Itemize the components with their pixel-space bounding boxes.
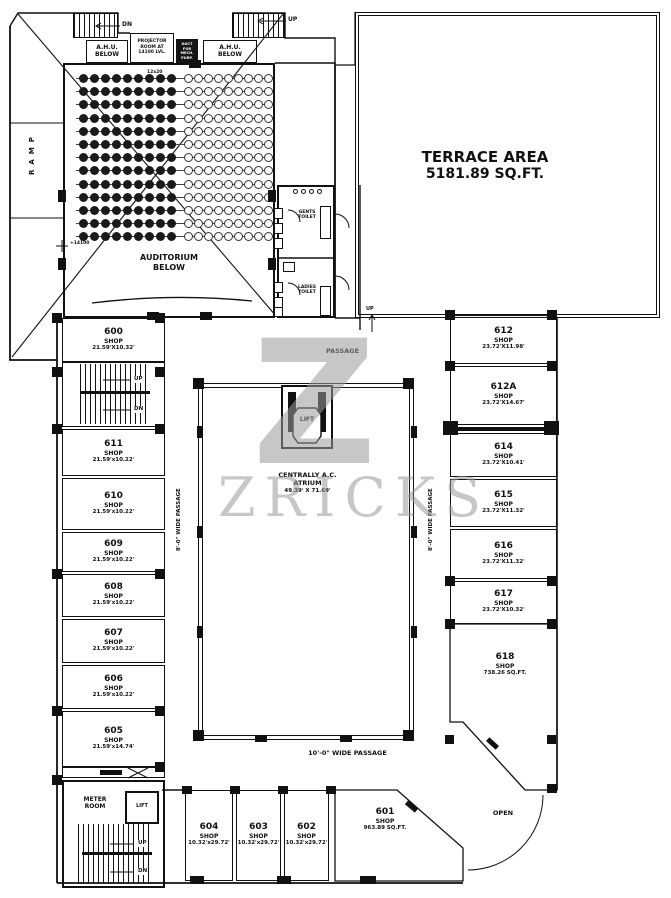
seat xyxy=(214,153,223,162)
seat xyxy=(134,140,143,149)
column xyxy=(155,367,165,377)
seat xyxy=(167,87,176,96)
seat xyxy=(134,193,143,202)
projector-room-label: PROJECTOR ROOM AT 14100 LVL. xyxy=(132,39,172,56)
seat xyxy=(101,74,110,83)
stairs-top-right xyxy=(232,13,285,38)
seat xyxy=(184,193,193,202)
toilet-fixture xyxy=(309,189,314,194)
seat xyxy=(156,153,165,162)
seat xyxy=(234,100,243,109)
seat xyxy=(194,100,203,109)
column xyxy=(58,258,66,270)
seat xyxy=(204,74,213,83)
seat xyxy=(194,140,203,149)
seat xyxy=(204,100,213,109)
ramp-label: RAMP xyxy=(28,126,36,182)
column xyxy=(340,736,352,742)
seat xyxy=(123,74,132,83)
seat xyxy=(79,74,88,83)
seat xyxy=(214,87,223,96)
seat xyxy=(184,153,193,162)
seat xyxy=(254,74,263,83)
seat xyxy=(134,114,143,123)
seat xyxy=(214,74,223,83)
seat xyxy=(112,87,121,96)
seat xyxy=(264,140,273,149)
seat xyxy=(167,153,176,162)
seat xyxy=(90,153,99,162)
seat xyxy=(112,219,121,228)
seat xyxy=(79,206,88,215)
door-618 xyxy=(486,737,499,749)
seat xyxy=(90,166,99,175)
mid-stairs-dn: DN xyxy=(133,406,144,413)
core-lift-label: LIFT xyxy=(125,803,159,809)
seat xyxy=(145,232,154,241)
seat xyxy=(145,87,154,96)
seat xyxy=(79,114,88,123)
seat xyxy=(90,127,99,136)
stairs-top-right-label: UP xyxy=(288,16,297,23)
seat xyxy=(244,140,253,149)
seat xyxy=(101,180,110,189)
seat xyxy=(244,153,253,162)
column xyxy=(52,424,62,434)
seat xyxy=(204,232,213,241)
seat xyxy=(79,166,88,175)
seat xyxy=(123,180,132,189)
seat xyxy=(244,87,253,96)
seat xyxy=(167,166,176,175)
seat xyxy=(264,166,273,175)
seat xyxy=(156,206,165,215)
seat xyxy=(244,114,253,123)
column xyxy=(58,190,66,202)
seat xyxy=(264,219,273,228)
seat xyxy=(234,87,243,96)
seat xyxy=(224,232,233,241)
seat xyxy=(123,100,132,109)
seat xyxy=(123,166,132,175)
shop-602-label: 602SHOP10.32'x29.72' xyxy=(284,790,329,881)
column xyxy=(360,876,376,884)
seat xyxy=(214,180,223,189)
seat xyxy=(234,219,243,228)
seat xyxy=(101,219,110,228)
shop-617-label: 617SHOP23.72'X10.32' xyxy=(450,581,557,624)
seat xyxy=(244,127,253,136)
toilet-fixture xyxy=(320,206,331,239)
seat xyxy=(167,127,176,136)
shop-618-label: 618SHOP738.26 SQ.FT. xyxy=(460,645,550,685)
toilet-fixture xyxy=(274,282,283,293)
seat xyxy=(234,193,243,202)
seat xyxy=(112,114,121,123)
seat xyxy=(254,127,263,136)
column xyxy=(197,626,203,638)
seat xyxy=(264,206,273,215)
seat xyxy=(194,153,203,162)
seat xyxy=(234,180,243,189)
seat xyxy=(254,153,263,162)
floor-plan: TERRACE AREA 5181.89 SQ.FT. DN UP A.H.U.… xyxy=(0,0,671,898)
seat xyxy=(145,127,154,136)
column xyxy=(52,367,62,377)
column xyxy=(411,626,417,638)
seat xyxy=(204,206,213,215)
seat xyxy=(79,127,88,136)
seat xyxy=(167,206,176,215)
seat xyxy=(167,232,176,241)
seat xyxy=(184,180,193,189)
seat xyxy=(90,114,99,123)
shop-601-label: 601SHOP963.89 SQ.FT. xyxy=(345,800,425,840)
seat xyxy=(123,232,132,241)
core-strip-dash xyxy=(100,770,122,775)
seat xyxy=(234,114,243,123)
seat xyxy=(204,180,213,189)
seat xyxy=(214,193,223,202)
seat xyxy=(244,74,253,83)
open-area-label: OPEN xyxy=(478,810,528,818)
seat xyxy=(167,140,176,149)
seat xyxy=(254,206,263,215)
seat xyxy=(234,127,243,136)
shop-616-label: 616SHOP23.72'X11.32' xyxy=(450,529,557,579)
shop-604-label: 604SHOP10.32'x29.72' xyxy=(185,790,233,881)
seat xyxy=(101,114,110,123)
seat xyxy=(244,206,253,215)
seat xyxy=(156,219,165,228)
seat xyxy=(184,114,193,123)
mid-stairs-up: UP xyxy=(133,376,144,383)
column xyxy=(403,730,414,741)
seat xyxy=(90,87,99,96)
seat xyxy=(123,219,132,228)
seat xyxy=(79,219,88,228)
ahu-left-label: A.H.U. BELOW xyxy=(86,44,128,58)
seat xyxy=(194,127,203,136)
seat xyxy=(184,232,193,241)
seat xyxy=(204,127,213,136)
seat xyxy=(134,127,143,136)
seat xyxy=(224,100,233,109)
passage-left-label: 8'-0" WIDE PASSAGE xyxy=(176,462,183,577)
seat xyxy=(101,100,110,109)
seat xyxy=(214,206,223,215)
seat xyxy=(167,114,176,123)
stairs-top-left xyxy=(73,13,118,38)
column xyxy=(193,378,204,389)
seat xyxy=(264,100,273,109)
seat xyxy=(134,232,143,241)
seat xyxy=(145,219,154,228)
seat xyxy=(254,232,263,241)
shop-612-label: 612SHOP23.72'X11.98' xyxy=(450,315,557,364)
seat xyxy=(156,193,165,202)
seat xyxy=(214,114,223,123)
toilet-fixture xyxy=(274,208,283,219)
seat xyxy=(79,87,88,96)
seat xyxy=(145,140,154,149)
seat xyxy=(112,74,121,83)
column xyxy=(268,190,276,202)
seat xyxy=(167,100,176,109)
seat xyxy=(234,140,243,149)
seat xyxy=(194,232,203,241)
seat xyxy=(204,140,213,149)
column xyxy=(411,426,417,438)
mid-stairs-treads xyxy=(80,364,150,424)
seat xyxy=(112,206,121,215)
seat xyxy=(112,140,121,149)
watermark-logo: Z xyxy=(252,318,377,490)
seat xyxy=(123,127,132,136)
seat xyxy=(90,140,99,149)
seat xyxy=(79,153,88,162)
seat xyxy=(204,193,213,202)
seat xyxy=(101,166,110,175)
seat xyxy=(224,193,233,202)
seat xyxy=(167,74,176,83)
seat xyxy=(112,166,121,175)
seat xyxy=(123,193,132,202)
seat xyxy=(224,87,233,96)
column xyxy=(52,569,62,579)
seat xyxy=(112,127,121,136)
seat xyxy=(264,87,273,96)
seat xyxy=(90,219,99,228)
toilet-fixture xyxy=(274,223,283,234)
seat xyxy=(134,206,143,215)
seat xyxy=(184,87,193,96)
seat xyxy=(184,127,193,136)
seat xyxy=(101,193,110,202)
seat-note: 12x20 xyxy=(147,70,162,75)
seat xyxy=(79,140,88,149)
seat xyxy=(112,232,121,241)
seat xyxy=(156,140,165,149)
shop-608-label: 608SHOP21.59'x10.22' xyxy=(62,574,165,617)
seat xyxy=(214,219,223,228)
column xyxy=(268,258,276,270)
seat xyxy=(224,166,233,175)
ahu-right-label: A.H.U. BELOW xyxy=(203,44,257,58)
seat xyxy=(194,206,203,215)
seat xyxy=(194,166,203,175)
shop-606-label: 606SHOP21.59'x10.22' xyxy=(62,665,165,709)
seat xyxy=(112,100,121,109)
shop-603-label: 603SHOP10.32'x29.72' xyxy=(236,790,281,881)
seat xyxy=(214,100,223,109)
seat xyxy=(184,219,193,228)
toilet-fixture xyxy=(283,262,295,272)
seat xyxy=(123,114,132,123)
seat xyxy=(224,219,233,228)
seat xyxy=(224,140,233,149)
gents-toilet-label: GENTS TOILET xyxy=(294,210,320,221)
seat xyxy=(156,232,165,241)
seat xyxy=(123,206,132,215)
terrace-title: TERRACE AREA xyxy=(390,148,580,166)
seat xyxy=(112,180,121,189)
seat xyxy=(264,232,273,241)
seat xyxy=(204,114,213,123)
seat xyxy=(156,127,165,136)
seat xyxy=(224,153,233,162)
seat xyxy=(167,219,176,228)
column xyxy=(547,784,557,793)
terrace-area-value: 5181.89 SQ.FT. xyxy=(390,166,580,183)
terrace-label: TERRACE AREA 5181.89 SQ.FT. xyxy=(390,148,580,183)
auditorium-label: AUDITORIUM BELOW xyxy=(119,253,219,272)
seat xyxy=(194,87,203,96)
seat xyxy=(224,206,233,215)
seat xyxy=(145,193,154,202)
seat xyxy=(90,232,99,241)
seat xyxy=(134,153,143,162)
seat xyxy=(101,153,110,162)
seat xyxy=(244,100,253,109)
seat xyxy=(204,219,213,228)
core-stairs-dn: DN xyxy=(137,868,148,875)
seat xyxy=(214,232,223,241)
seat xyxy=(184,166,193,175)
seat xyxy=(167,193,176,202)
column xyxy=(197,526,203,538)
column xyxy=(197,426,203,438)
duct-box-label: DUCT FOR MECH. PURP. xyxy=(177,42,197,61)
seat xyxy=(214,140,223,149)
core-stairs-up: UP xyxy=(137,840,148,847)
column xyxy=(445,735,454,744)
toilet-fixture xyxy=(274,238,283,249)
seat xyxy=(90,180,99,189)
seat xyxy=(244,180,253,189)
shop-611-label: 611SHOP21.59'x10.22' xyxy=(62,429,165,476)
seat xyxy=(264,74,273,83)
seat xyxy=(145,114,154,123)
seat xyxy=(101,206,110,215)
toilet-fixture xyxy=(293,189,298,194)
seat xyxy=(244,166,253,175)
seat xyxy=(90,206,99,215)
seat xyxy=(145,180,154,189)
column xyxy=(547,735,556,744)
seat xyxy=(224,114,233,123)
column xyxy=(255,736,267,742)
watermark-brand: ZRICKS xyxy=(218,466,490,529)
seat xyxy=(194,219,203,228)
seat xyxy=(254,166,263,175)
meter-room-label: METER ROOM xyxy=(70,796,120,810)
seat xyxy=(145,166,154,175)
seat xyxy=(184,100,193,109)
seat xyxy=(234,206,243,215)
toilet-fixture xyxy=(317,189,322,194)
seat xyxy=(254,180,263,189)
seat xyxy=(244,232,253,241)
seat xyxy=(101,127,110,136)
seat xyxy=(123,153,132,162)
seat xyxy=(254,140,263,149)
seat xyxy=(134,180,143,189)
seat xyxy=(264,127,273,136)
seat xyxy=(224,127,233,136)
seat xyxy=(194,180,203,189)
seat xyxy=(194,114,203,123)
seat xyxy=(234,74,243,83)
seat xyxy=(214,166,223,175)
seat xyxy=(79,180,88,189)
shop-610-label: 610SHOP21.59'x10.22' xyxy=(62,478,165,530)
seat xyxy=(204,153,213,162)
column xyxy=(52,313,62,323)
shop-607-label: 607SHOP21.59'x10.22' xyxy=(62,619,165,663)
shop-600-label: 600SHOP21.59'X10.32' xyxy=(62,318,165,362)
seat xyxy=(254,193,263,202)
seat xyxy=(156,114,165,123)
column xyxy=(403,378,414,389)
seat xyxy=(156,100,165,109)
seat xyxy=(254,100,263,109)
shop-612A-label: 612ASHOP23.72'X14.67' xyxy=(450,366,557,425)
core-stairs-landing xyxy=(82,852,152,855)
seat xyxy=(134,87,143,96)
seat xyxy=(156,166,165,175)
seat xyxy=(134,100,143,109)
seat xyxy=(194,193,203,202)
seat xyxy=(234,232,243,241)
seat xyxy=(156,87,165,96)
seat xyxy=(112,153,121,162)
seat xyxy=(145,100,154,109)
seat xyxy=(234,166,243,175)
seat xyxy=(101,87,110,96)
seat xyxy=(79,193,88,202)
seat xyxy=(264,153,273,162)
seat xyxy=(264,180,273,189)
seat xyxy=(224,74,233,83)
seat xyxy=(224,180,233,189)
shop-605-label: 605SHOP21.59'x14.74' xyxy=(62,711,165,767)
seat xyxy=(254,219,263,228)
seat xyxy=(134,219,143,228)
seat xyxy=(90,100,99,109)
seat xyxy=(79,100,88,109)
seat xyxy=(264,114,273,123)
seat xyxy=(167,180,176,189)
seat xyxy=(145,153,154,162)
column xyxy=(200,312,212,320)
passage-bottom-label: 10'-0" WIDE PASSAGE xyxy=(300,750,395,758)
seat xyxy=(194,74,203,83)
seat xyxy=(214,127,223,136)
column xyxy=(52,706,62,716)
ladies-toilet-label: LADIES TOILET xyxy=(294,285,320,296)
seat xyxy=(90,193,99,202)
seat xyxy=(254,114,263,123)
stairs-top-left-label: DN xyxy=(122,21,132,28)
seat xyxy=(112,193,121,202)
seat xyxy=(254,87,263,96)
seat xyxy=(244,219,253,228)
seat xyxy=(134,74,143,83)
seat xyxy=(123,87,132,96)
seat xyxy=(244,193,253,202)
seat xyxy=(156,180,165,189)
